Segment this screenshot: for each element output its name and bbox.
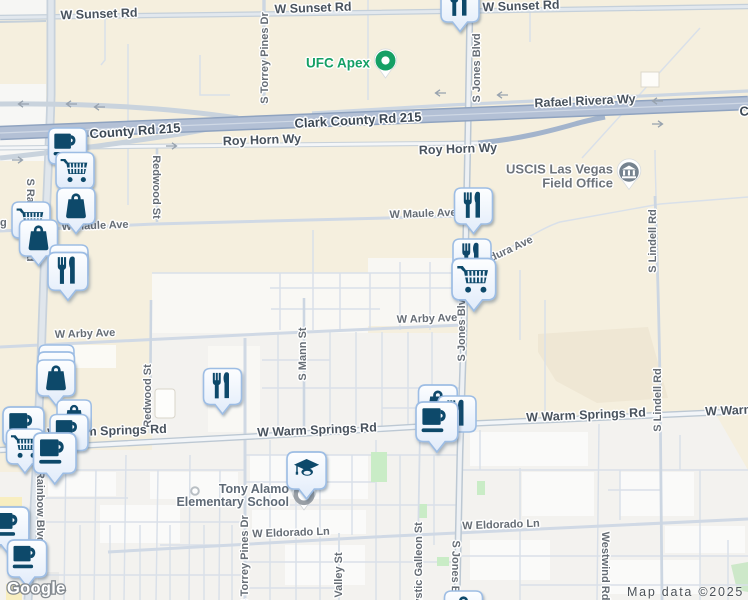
svg-text:Google: Google [7, 580, 66, 598]
